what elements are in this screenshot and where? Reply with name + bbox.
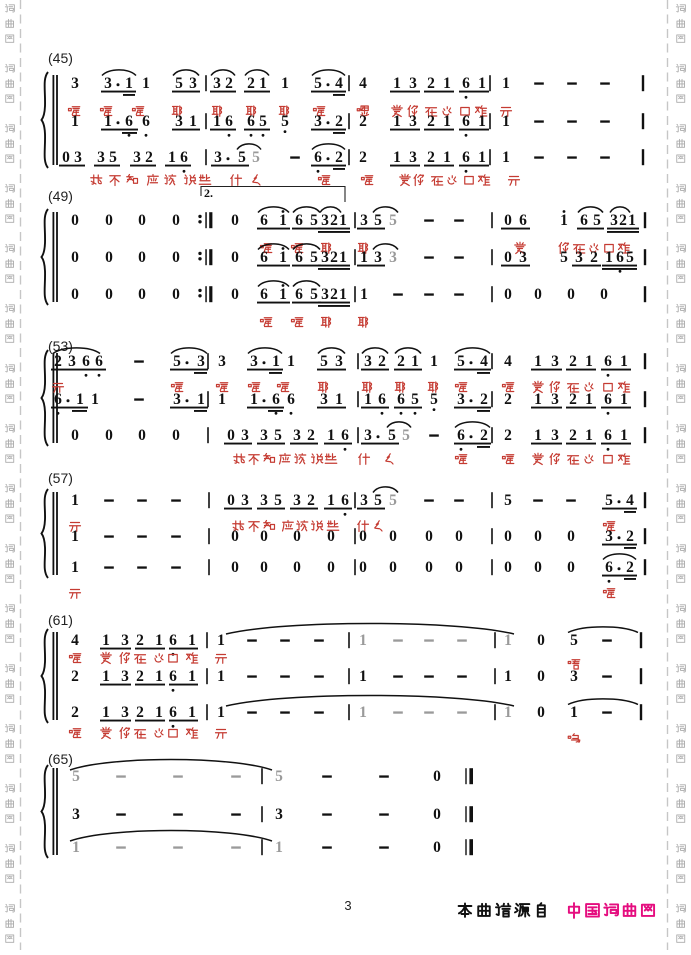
svg-text:3: 3 <box>321 212 329 229</box>
svg-text:0: 0 <box>327 528 335 545</box>
svg-text:1: 1 <box>275 839 283 856</box>
svg-text:2: 2 <box>619 212 627 229</box>
svg-text:2.: 2. <box>204 186 213 200</box>
svg-text:0: 0 <box>504 212 512 229</box>
svg-text:3: 3 <box>360 492 368 509</box>
svg-text:0: 0 <box>260 528 268 545</box>
svg-text:3: 3 <box>173 391 181 408</box>
svg-text:1: 1 <box>359 704 367 721</box>
svg-text:0: 0 <box>537 704 545 721</box>
svg-text:3: 3 <box>74 149 82 166</box>
svg-text:3: 3 <box>389 249 397 266</box>
svg-text:1: 1 <box>279 249 287 266</box>
svg-text:5: 5 <box>374 492 382 509</box>
svg-text:1: 1 <box>335 391 343 408</box>
svg-text:4: 4 <box>71 632 79 649</box>
svg-text:3: 3 <box>121 704 129 721</box>
svg-text:5: 5 <box>310 212 318 229</box>
svg-text:5: 5 <box>238 149 246 166</box>
svg-text:3: 3 <box>197 353 205 370</box>
svg-text:(49): (49) <box>48 188 73 204</box>
svg-text:4: 4 <box>359 75 367 92</box>
svg-text:0: 0 <box>504 559 512 576</box>
svg-text:0: 0 <box>537 632 545 649</box>
svg-text:0: 0 <box>231 249 239 266</box>
svg-text:5: 5 <box>320 353 328 370</box>
svg-text:1: 1 <box>71 528 79 545</box>
svg-text:2: 2 <box>136 668 144 685</box>
svg-text:0: 0 <box>293 559 301 576</box>
svg-text:1: 1 <box>71 492 79 509</box>
svg-text:1: 1 <box>279 286 287 303</box>
svg-text:1: 1 <box>102 668 110 685</box>
svg-text:0: 0 <box>227 427 235 444</box>
svg-text:5: 5 <box>570 632 578 649</box>
svg-text:1: 1 <box>393 149 401 166</box>
svg-text:0: 0 <box>567 528 575 545</box>
svg-text:1: 1 <box>534 353 542 370</box>
svg-text:1: 1 <box>327 492 335 509</box>
svg-text:1: 1 <box>502 149 510 166</box>
svg-text:5: 5 <box>457 353 465 370</box>
svg-text:6: 6 <box>272 391 280 408</box>
svg-text:1: 1 <box>585 353 593 370</box>
svg-text:1: 1 <box>279 212 287 229</box>
svg-text:1: 1 <box>102 704 110 721</box>
svg-text:1: 1 <box>102 632 110 649</box>
svg-text:6: 6 <box>169 668 177 685</box>
svg-text:1: 1 <box>71 559 79 576</box>
svg-text:1: 1 <box>478 113 486 130</box>
svg-text:1: 1 <box>534 391 542 408</box>
svg-text:1: 1 <box>504 704 512 721</box>
svg-text:2: 2 <box>378 353 386 370</box>
svg-text:6: 6 <box>341 427 349 444</box>
svg-text:1: 1 <box>218 391 226 408</box>
svg-text:2: 2 <box>136 632 144 649</box>
svg-text:0: 0 <box>71 212 79 229</box>
svg-text:0: 0 <box>138 249 146 266</box>
svg-text:3: 3 <box>364 353 372 370</box>
svg-text:0: 0 <box>600 286 608 303</box>
svg-text:3: 3 <box>260 492 268 509</box>
svg-text:6: 6 <box>95 353 103 370</box>
svg-text:6: 6 <box>125 113 133 130</box>
svg-text:0: 0 <box>231 559 239 576</box>
svg-text:0: 0 <box>389 559 397 576</box>
svg-text:1: 1 <box>620 391 628 408</box>
svg-text:1: 1 <box>197 391 205 408</box>
svg-text:1: 1 <box>281 75 289 92</box>
svg-text:3: 3 <box>293 427 301 444</box>
svg-text:2: 2 <box>569 353 577 370</box>
svg-text:1: 1 <box>620 427 628 444</box>
svg-text:6: 6 <box>604 427 612 444</box>
svg-text:1: 1 <box>393 113 401 130</box>
svg-text:6: 6 <box>287 391 295 408</box>
svg-text:5: 5 <box>626 249 634 266</box>
svg-text:1: 1 <box>142 75 150 92</box>
svg-text:3: 3 <box>360 212 368 229</box>
svg-text:3: 3 <box>320 391 328 408</box>
svg-text:5: 5 <box>275 768 283 785</box>
svg-text:4: 4 <box>504 353 512 370</box>
svg-text:6: 6 <box>462 149 470 166</box>
svg-text:3: 3 <box>133 149 141 166</box>
svg-text:1: 1 <box>570 704 578 721</box>
svg-text:1: 1 <box>443 113 451 130</box>
svg-text:2: 2 <box>145 149 153 166</box>
svg-text:(45): (45) <box>48 50 73 66</box>
svg-text:3: 3 <box>344 898 351 913</box>
svg-text:0: 0 <box>105 427 113 444</box>
svg-text:0: 0 <box>567 559 575 576</box>
svg-text:3: 3 <box>610 212 618 229</box>
svg-text:0: 0 <box>455 528 463 545</box>
svg-text:3: 3 <box>72 806 80 823</box>
svg-text:0: 0 <box>172 427 180 444</box>
svg-text:0: 0 <box>293 528 301 545</box>
svg-text:6: 6 <box>462 113 470 130</box>
svg-text:3: 3 <box>374 249 382 266</box>
svg-text:2: 2 <box>71 668 79 685</box>
svg-text:1: 1 <box>259 75 267 92</box>
svg-text:0: 0 <box>534 286 542 303</box>
svg-text:6: 6 <box>519 212 527 229</box>
svg-text:1: 1 <box>91 391 99 408</box>
svg-text:3: 3 <box>409 75 417 92</box>
svg-text:1: 1 <box>155 704 163 721</box>
svg-text:3: 3 <box>335 353 343 370</box>
svg-text:6: 6 <box>397 391 405 408</box>
svg-text:5: 5 <box>173 353 181 370</box>
svg-text:5: 5 <box>389 492 397 509</box>
svg-text:3: 3 <box>409 149 417 166</box>
svg-text:2: 2 <box>330 286 338 303</box>
svg-text:3: 3 <box>321 249 329 266</box>
svg-text:1: 1 <box>250 391 258 408</box>
svg-text:6: 6 <box>142 113 150 130</box>
svg-text:3: 3 <box>314 113 322 130</box>
svg-text:0: 0 <box>105 286 113 303</box>
svg-text:0: 0 <box>433 806 441 823</box>
svg-text:6: 6 <box>295 286 303 303</box>
svg-text:1: 1 <box>411 353 419 370</box>
svg-text:2: 2 <box>335 113 343 130</box>
svg-text:1: 1 <box>188 704 196 721</box>
svg-text:5: 5 <box>402 427 410 444</box>
svg-text:0: 0 <box>433 768 441 785</box>
svg-text:3: 3 <box>241 427 249 444</box>
svg-text:0: 0 <box>433 839 441 856</box>
svg-text:0: 0 <box>62 149 70 166</box>
svg-text:(53): (53) <box>48 338 73 354</box>
svg-text:1: 1 <box>189 113 197 130</box>
svg-text:3: 3 <box>214 149 222 166</box>
svg-text:0: 0 <box>71 427 79 444</box>
svg-text:0: 0 <box>138 212 146 229</box>
svg-text:1: 1 <box>605 249 613 266</box>
svg-text:3: 3 <box>241 492 249 509</box>
svg-text:5: 5 <box>504 492 512 509</box>
svg-text:3: 3 <box>293 492 301 509</box>
svg-text:4: 4 <box>626 492 634 509</box>
svg-text:1: 1 <box>560 212 568 229</box>
svg-text:3: 3 <box>364 427 372 444</box>
svg-text:6: 6 <box>260 286 268 303</box>
svg-text:5: 5 <box>430 391 438 408</box>
svg-text:6: 6 <box>295 249 303 266</box>
svg-text:3: 3 <box>175 113 183 130</box>
svg-text:3: 3 <box>605 528 613 545</box>
svg-text:4: 4 <box>480 353 488 370</box>
svg-text:2: 2 <box>359 149 367 166</box>
svg-text:3: 3 <box>575 249 583 266</box>
svg-text:1: 1 <box>76 391 84 408</box>
svg-text:1: 1 <box>71 113 79 130</box>
svg-text:0: 0 <box>105 212 113 229</box>
svg-text:1: 1 <box>443 75 451 92</box>
svg-text:2: 2 <box>307 492 315 509</box>
svg-text:6: 6 <box>604 353 612 370</box>
svg-text:2: 2 <box>569 391 577 408</box>
svg-text:1: 1 <box>502 113 510 130</box>
svg-text:3: 3 <box>250 353 258 370</box>
svg-text:4: 4 <box>335 75 343 92</box>
svg-text:1: 1 <box>504 668 512 685</box>
svg-text:6: 6 <box>314 149 322 166</box>
svg-text:6: 6 <box>82 353 90 370</box>
svg-text:3: 3 <box>321 286 329 303</box>
svg-text:6: 6 <box>169 704 177 721</box>
svg-text:0: 0 <box>172 249 180 266</box>
svg-text:6: 6 <box>457 427 465 444</box>
svg-text:5: 5 <box>593 212 601 229</box>
svg-text:6: 6 <box>169 632 177 649</box>
svg-text:2: 2 <box>590 249 598 266</box>
svg-text:1: 1 <box>339 212 347 229</box>
svg-text:3: 3 <box>68 353 76 370</box>
svg-text:1: 1 <box>360 286 368 303</box>
svg-text:6: 6 <box>616 249 624 266</box>
svg-text:0: 0 <box>425 528 433 545</box>
svg-text:2: 2 <box>225 75 233 92</box>
svg-text:2: 2 <box>626 559 634 576</box>
svg-text:0: 0 <box>567 286 575 303</box>
svg-text:6: 6 <box>605 559 613 576</box>
svg-text:3: 3 <box>218 353 226 370</box>
svg-text:1: 1 <box>393 75 401 92</box>
svg-text:3: 3 <box>519 249 527 266</box>
svg-text:0: 0 <box>71 286 79 303</box>
svg-text:5: 5 <box>389 212 397 229</box>
svg-text:1: 1 <box>620 353 628 370</box>
svg-text:1: 1 <box>478 149 486 166</box>
svg-text:5: 5 <box>72 768 80 785</box>
svg-text:6: 6 <box>180 149 188 166</box>
svg-text:1: 1 <box>188 632 196 649</box>
svg-text:0: 0 <box>260 559 268 576</box>
svg-text:0: 0 <box>455 559 463 576</box>
svg-text:6: 6 <box>260 249 268 266</box>
svg-text:0: 0 <box>389 528 397 545</box>
svg-text:1: 1 <box>628 212 636 229</box>
svg-text:5: 5 <box>274 427 282 444</box>
svg-text:2: 2 <box>335 149 343 166</box>
svg-text:3: 3 <box>260 427 268 444</box>
svg-text:2: 2 <box>427 75 435 92</box>
svg-text:1: 1 <box>168 149 176 166</box>
svg-text:(65): (65) <box>48 751 73 767</box>
svg-text:1: 1 <box>155 632 163 649</box>
svg-text:0: 0 <box>504 528 512 545</box>
svg-text:2: 2 <box>54 353 62 370</box>
svg-text:3: 3 <box>213 75 221 92</box>
svg-text:5: 5 <box>560 249 568 266</box>
svg-text:1: 1 <box>327 427 335 444</box>
svg-text:3: 3 <box>97 149 105 166</box>
svg-text:1: 1 <box>339 286 347 303</box>
svg-text:2: 2 <box>626 528 634 545</box>
svg-text:5: 5 <box>310 249 318 266</box>
svg-text:1: 1 <box>125 75 133 92</box>
svg-text:1: 1 <box>585 391 593 408</box>
svg-text:0: 0 <box>425 559 433 576</box>
svg-text:6: 6 <box>260 212 268 229</box>
svg-text:6: 6 <box>341 492 349 509</box>
svg-text:0: 0 <box>172 212 180 229</box>
svg-text:0: 0 <box>227 492 235 509</box>
svg-text:6: 6 <box>225 113 233 130</box>
svg-text:1: 1 <box>502 75 510 92</box>
svg-text:2: 2 <box>480 427 488 444</box>
svg-text:0: 0 <box>231 286 239 303</box>
svg-text:5: 5 <box>109 149 117 166</box>
svg-text:1: 1 <box>339 249 347 266</box>
svg-text:5: 5 <box>314 75 322 92</box>
svg-text:0: 0 <box>138 427 146 444</box>
svg-text:0: 0 <box>327 559 335 576</box>
svg-text:1: 1 <box>188 668 196 685</box>
svg-text:3: 3 <box>409 113 417 130</box>
svg-text:0: 0 <box>359 528 367 545</box>
svg-text:5: 5 <box>274 492 282 509</box>
svg-text:6: 6 <box>378 391 386 408</box>
svg-text:5: 5 <box>259 113 267 130</box>
svg-text:3: 3 <box>275 806 283 823</box>
svg-text:6: 6 <box>54 391 62 408</box>
svg-text:2: 2 <box>427 149 435 166</box>
svg-text:1: 1 <box>443 149 451 166</box>
svg-text:5: 5 <box>252 149 260 166</box>
svg-text:1: 1 <box>272 353 280 370</box>
svg-text:0: 0 <box>534 559 542 576</box>
svg-text:1: 1 <box>359 632 367 649</box>
svg-text:0: 0 <box>231 212 239 229</box>
svg-text:2: 2 <box>427 113 435 130</box>
svg-text:0: 0 <box>172 286 180 303</box>
svg-text:0: 0 <box>504 286 512 303</box>
svg-text:2: 2 <box>480 391 488 408</box>
svg-text:1: 1 <box>364 391 372 408</box>
svg-text:1: 1 <box>534 427 542 444</box>
svg-text:3: 3 <box>457 391 465 408</box>
svg-text:5: 5 <box>310 286 318 303</box>
svg-text:5: 5 <box>411 391 419 408</box>
svg-text:2: 2 <box>397 353 405 370</box>
svg-text:0: 0 <box>537 668 545 685</box>
svg-text:2: 2 <box>359 113 367 130</box>
svg-text:3: 3 <box>551 391 559 408</box>
svg-text:0: 0 <box>359 559 367 576</box>
svg-text:1: 1 <box>360 249 368 266</box>
svg-text:1: 1 <box>104 113 112 130</box>
svg-text:2: 2 <box>71 704 79 721</box>
svg-text:0: 0 <box>504 249 512 266</box>
svg-text:1: 1 <box>430 353 438 370</box>
svg-text:2: 2 <box>136 704 144 721</box>
svg-text:2: 2 <box>307 427 315 444</box>
svg-text:2: 2 <box>330 212 338 229</box>
svg-text:3: 3 <box>189 75 197 92</box>
svg-text:2: 2 <box>330 249 338 266</box>
svg-text:3: 3 <box>104 75 112 92</box>
svg-text:3: 3 <box>121 632 129 649</box>
svg-text:5: 5 <box>281 113 289 130</box>
svg-text:6: 6 <box>247 113 255 130</box>
svg-text:3: 3 <box>551 353 559 370</box>
svg-text:1: 1 <box>213 113 221 130</box>
svg-text:3: 3 <box>551 427 559 444</box>
svg-text:1: 1 <box>359 668 367 685</box>
svg-text:2: 2 <box>504 427 512 444</box>
svg-text:5: 5 <box>374 212 382 229</box>
svg-text:1: 1 <box>287 353 295 370</box>
svg-text:0: 0 <box>138 286 146 303</box>
svg-text:1: 1 <box>585 427 593 444</box>
svg-text:1: 1 <box>217 668 225 685</box>
svg-text:1: 1 <box>217 632 225 649</box>
svg-text:3: 3 <box>570 668 578 685</box>
svg-text:6: 6 <box>580 212 588 229</box>
svg-text:0: 0 <box>71 249 79 266</box>
svg-text:6: 6 <box>295 212 303 229</box>
svg-text:5: 5 <box>605 492 613 509</box>
svg-text:1: 1 <box>217 704 225 721</box>
svg-text:2: 2 <box>247 75 255 92</box>
svg-text:0: 0 <box>231 528 239 545</box>
svg-text:0: 0 <box>534 528 542 545</box>
svg-text:1: 1 <box>504 632 512 649</box>
svg-text:6: 6 <box>462 75 470 92</box>
svg-text:6: 6 <box>604 391 612 408</box>
svg-text:5: 5 <box>175 75 183 92</box>
svg-text:5: 5 <box>388 427 396 444</box>
svg-text:3: 3 <box>121 668 129 685</box>
svg-text:1: 1 <box>72 839 80 856</box>
svg-text:2: 2 <box>504 391 512 408</box>
svg-text:0: 0 <box>105 249 113 266</box>
svg-text:3: 3 <box>71 75 79 92</box>
svg-text:1: 1 <box>155 668 163 685</box>
svg-text:(61): (61) <box>48 612 73 628</box>
svg-text:(57): (57) <box>48 470 73 486</box>
svg-text:2: 2 <box>569 427 577 444</box>
svg-text:1: 1 <box>478 75 486 92</box>
